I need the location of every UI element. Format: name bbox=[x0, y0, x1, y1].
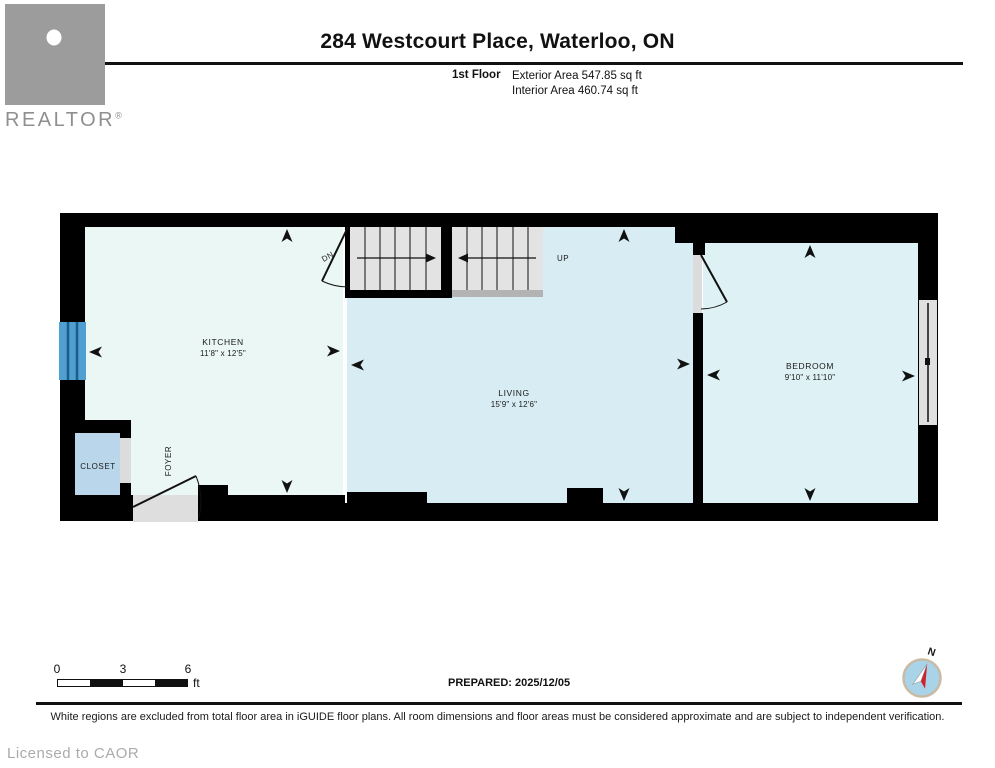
bedroom-door-opening bbox=[693, 255, 702, 313]
disclaimer-text: White regions are excluded from total fl… bbox=[0, 711, 995, 723]
stair-wall-divider bbox=[441, 227, 452, 298]
closet-label: CLOSET bbox=[80, 462, 116, 471]
realtor-logo bbox=[5, 4, 107, 107]
scale-tick-3: 3 bbox=[120, 662, 127, 676]
bedroom-wall-stub bbox=[693, 243, 705, 255]
wall-living-bedroom bbox=[693, 313, 703, 503]
wall-bottom-pier-1 bbox=[347, 492, 427, 503]
scale-tick-0: 0 bbox=[54, 662, 61, 676]
wall-bottom-kitchen bbox=[60, 495, 345, 521]
closet-wall-top bbox=[60, 420, 131, 433]
stair-wall-left bbox=[345, 227, 350, 292]
staircase-down bbox=[350, 227, 441, 290]
staircase-up bbox=[452, 227, 543, 297]
page-title: 284 Westcourt Place, Waterloo, ON bbox=[0, 30, 995, 54]
living-dims: 15'9" x 12'6" bbox=[491, 400, 537, 409]
entry-landing bbox=[133, 495, 198, 522]
scale-bar bbox=[57, 679, 188, 687]
compass: N bbox=[893, 642, 951, 702]
floor-plan: KITCHEN 11'8" x 12'5" LIVING 15'9" x 12'… bbox=[55, 205, 945, 535]
closet-door-opening bbox=[120, 438, 131, 483]
realtor-wordmark-text: REALTOR bbox=[5, 109, 115, 131]
living-label: LIVING bbox=[498, 388, 529, 398]
stair-landing-edge bbox=[452, 290, 543, 297]
header-divider-line bbox=[35, 62, 963, 65]
kitchen-dims: 11'8" x 12'5" bbox=[200, 349, 246, 358]
license-text: Licensed to CAOR bbox=[7, 745, 139, 762]
exterior-area: Exterior Area 547.85 sq ft bbox=[512, 69, 642, 84]
bedroom-window bbox=[919, 300, 937, 425]
interior-area: Interior Area 460.74 sq ft bbox=[512, 84, 642, 99]
bedroom-label: BEDROOM bbox=[786, 361, 834, 371]
scale-unit: ft bbox=[193, 676, 200, 690]
kitchen-window bbox=[59, 322, 86, 380]
scale-tick-6: 6 bbox=[185, 662, 192, 676]
prepared-date: PREPARED: 2025/12/05 bbox=[448, 677, 570, 689]
realtor-wordmark: REALTOR® bbox=[5, 109, 122, 132]
wall-bottom-pier-2 bbox=[567, 488, 603, 503]
wall-top-bedroom-step bbox=[675, 227, 938, 243]
realtor-logo-r-glyph bbox=[17, 16, 93, 93]
wall-top bbox=[60, 213, 938, 227]
stairs-up-label: UP bbox=[557, 254, 569, 263]
stair-wall-bottom bbox=[345, 290, 452, 298]
wall-left-upper bbox=[60, 213, 85, 422]
foyer-label: FOYER bbox=[164, 446, 173, 477]
wall-entry-stub bbox=[198, 485, 228, 495]
bedroom-dims: 9'10" x 11'10" bbox=[785, 373, 836, 382]
kitchen-label: KITCHEN bbox=[202, 337, 244, 347]
footer-divider-line bbox=[36, 702, 962, 705]
compass-north-label: N bbox=[926, 645, 937, 659]
registered-mark: ® bbox=[115, 110, 122, 120]
floor-label: 1st Floor bbox=[452, 69, 501, 81]
area-summary: Exterior Area 547.85 sq ft Interior Area… bbox=[512, 69, 642, 99]
wall-bottom-living-bedroom bbox=[345, 503, 938, 521]
